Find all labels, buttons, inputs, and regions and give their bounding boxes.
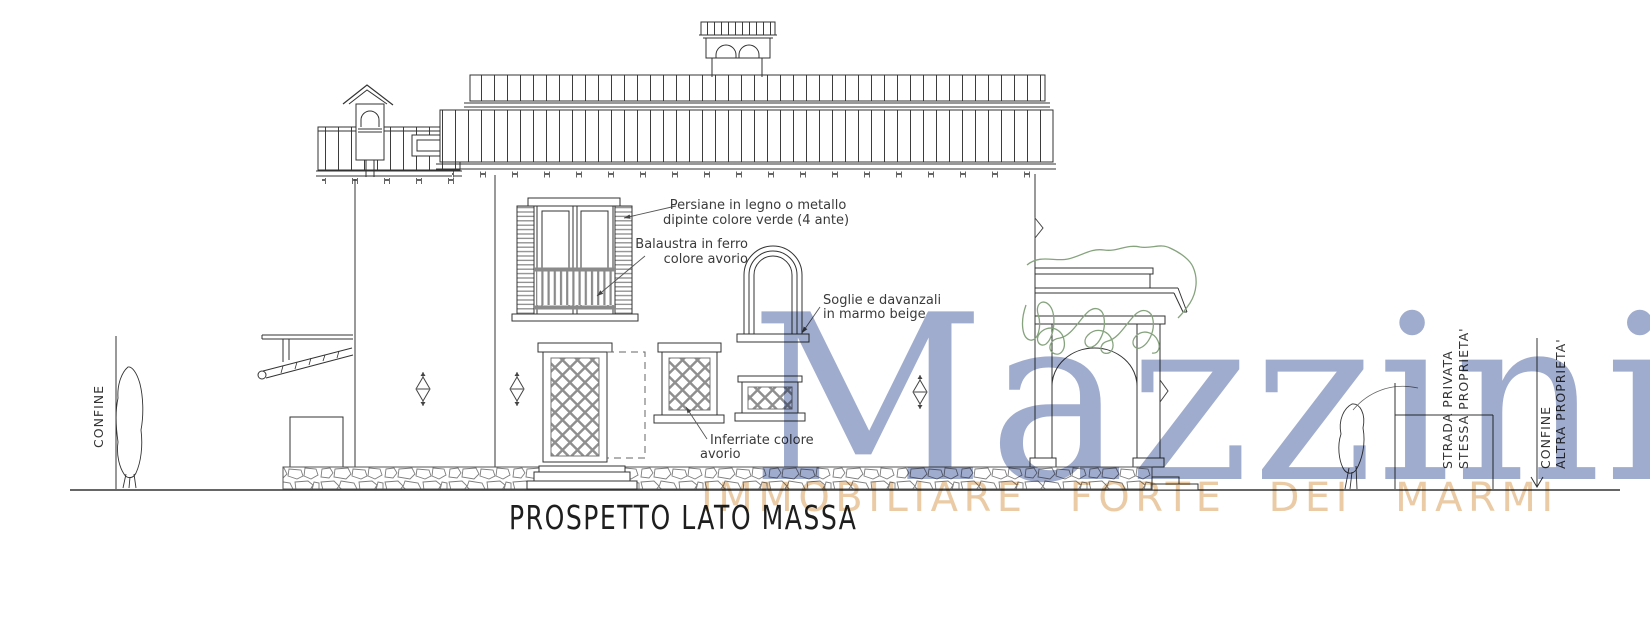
watermark-tagline: IMMOBILIARE FORTE DEI MARMI xyxy=(701,475,1559,521)
door-swing-dashed xyxy=(607,352,645,458)
entrance-door xyxy=(538,343,645,462)
wall-lantern-2 xyxy=(510,372,524,406)
main-chimney xyxy=(699,22,777,77)
balcony-sill xyxy=(512,314,638,321)
shutter-left xyxy=(517,206,534,314)
entrance-steps xyxy=(527,466,637,489)
door-grille xyxy=(551,358,599,456)
annotation-balaustra-line1: Balaustra in ferro xyxy=(635,237,748,252)
french-window xyxy=(512,198,638,321)
left-boundary xyxy=(116,336,143,489)
annotation-inferriate-line2: avorio xyxy=(700,447,741,462)
cypress-tree xyxy=(116,367,143,478)
annotation-balaustra-line2: colore avorio xyxy=(664,252,748,267)
roof-main xyxy=(436,75,1056,178)
annotation-persiane-line1: Persiane in legno o metallo xyxy=(670,198,847,213)
shutter-right xyxy=(615,206,632,314)
balcony-railing xyxy=(534,270,616,308)
wall-lantern-4 xyxy=(1035,218,1043,238)
elevation-drawing-canvas: Persiane in legno o metallo dipinte colo… xyxy=(0,0,1650,632)
annotation-persiane-line2: dipinte colore verde (4 ante) xyxy=(663,213,849,228)
label-confine-left: CONFINE xyxy=(91,385,106,448)
lean-to-canopy xyxy=(258,335,353,379)
wall-lantern-1 xyxy=(416,372,430,406)
